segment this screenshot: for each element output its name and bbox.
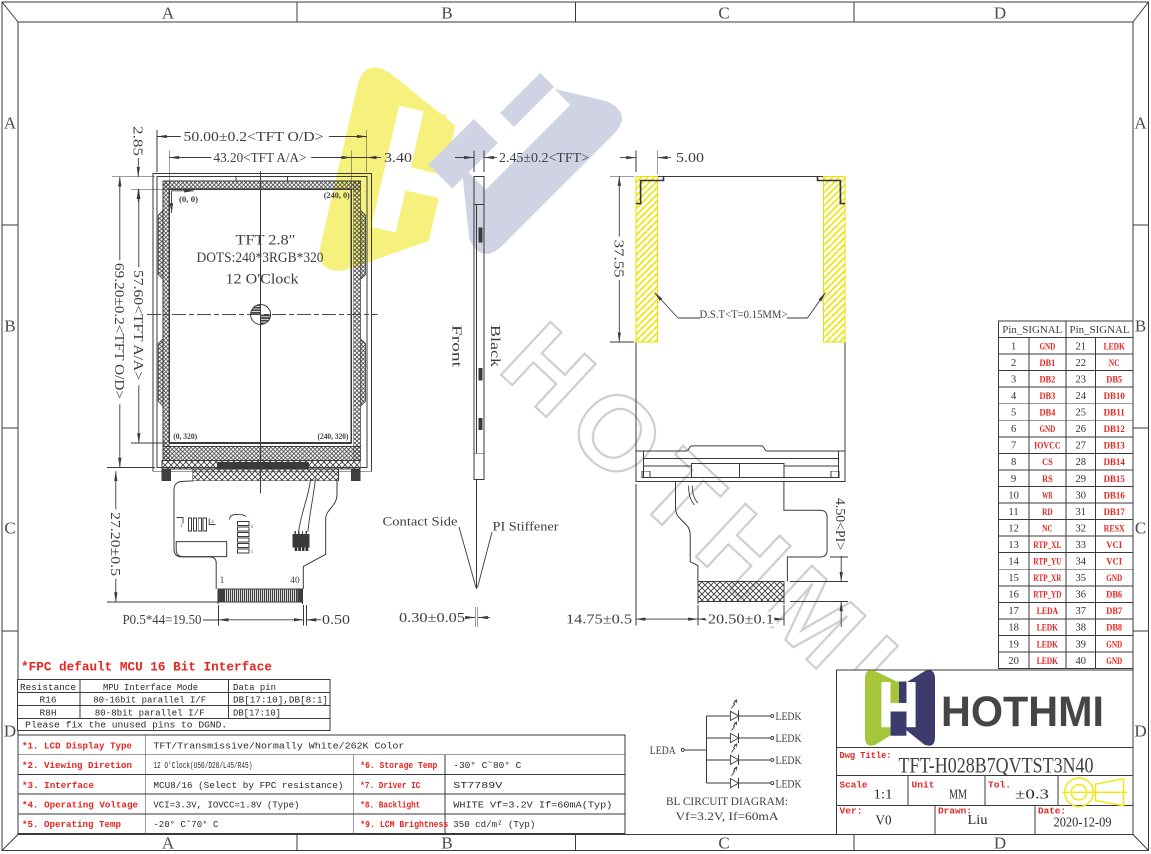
svg-text:5.00: 5.00 — [676, 150, 704, 165]
svg-text:11: 11 — [1009, 507, 1019, 518]
svg-text:50.00±0.2<TFT O/D>: 50.00±0.2<TFT O/D> — [184, 129, 324, 144]
svg-text:DB1: DB1 — [1039, 358, 1055, 368]
svg-text:13: 13 — [1008, 540, 1019, 551]
svg-text:DB6: DB6 — [1106, 590, 1122, 600]
svg-text:R8H: R8H — [40, 707, 57, 718]
svg-text:7: 7 — [1011, 441, 1016, 452]
svg-text:32: 32 — [1076, 523, 1087, 534]
svg-text:VCI: VCI — [1106, 557, 1122, 567]
svg-text:*5. Operating Temp: *5. Operating Temp — [22, 819, 121, 830]
svg-text:37.55: 37.55 — [612, 240, 627, 278]
svg-text:38: 38 — [1076, 623, 1087, 634]
svg-text:A: A — [162, 4, 175, 23]
svg-text:80-8bit parallel I/F: 80-8bit parallel I/F — [95, 707, 205, 718]
svg-text:0.30±0.05: 0.30±0.05 — [399, 610, 465, 625]
svg-text:-30° C˜80° C: -30° C˜80° C — [453, 760, 521, 771]
svg-text:DB2: DB2 — [1039, 375, 1055, 385]
svg-text:DB12: DB12 — [1104, 424, 1126, 434]
svg-text:20: 20 — [1008, 656, 1019, 667]
svg-text:28: 28 — [1076, 457, 1087, 468]
svg-text:3.40: 3.40 — [384, 150, 412, 165]
svg-text:IOVCC: IOVCC — [1034, 441, 1061, 451]
svg-text:RTP_YD: RTP_YD — [1033, 590, 1061, 600]
svg-text:2: 2 — [1011, 358, 1016, 369]
svg-text:DB4: DB4 — [1039, 408, 1055, 418]
svg-text:GND: GND — [1106, 639, 1122, 649]
svg-text:(240, 320): (240, 320) — [318, 432, 349, 441]
svg-text:39: 39 — [1076, 639, 1087, 650]
svg-text:RESX: RESX — [1104, 523, 1126, 533]
svg-text:RTP_YU: RTP_YU — [1033, 557, 1061, 567]
svg-text:57.60<TFT A/A>: 57.60<TFT A/A> — [131, 270, 146, 380]
svg-text:Front: Front — [449, 325, 464, 367]
svg-text:27: 27 — [1076, 441, 1087, 452]
svg-text:(0, 320): (0, 320) — [173, 432, 197, 441]
svg-text:D: D — [994, 834, 1006, 853]
svg-text:B: B — [1135, 317, 1146, 336]
svg-text:8: 8 — [1011, 457, 1016, 468]
svg-text:Ver:: Ver: — [840, 806, 863, 817]
svg-text:34: 34 — [1076, 557, 1087, 568]
svg-text:GND: GND — [1039, 424, 1055, 434]
svg-text:29: 29 — [1076, 474, 1087, 485]
svg-text:33: 33 — [1076, 540, 1087, 551]
svg-text:VCI: VCI — [1106, 540, 1122, 550]
svg-text:GND: GND — [1039, 341, 1055, 351]
svg-text:43.20<TFT A/A>: 43.20<TFT A/A> — [214, 150, 307, 165]
svg-text:D: D — [994, 4, 1006, 23]
svg-text:2020-12-09: 2020-12-09 — [1054, 815, 1112, 830]
svg-text:BL CIRCUIT DIAGRAM:: BL CIRCUIT DIAGRAM: — [666, 796, 788, 808]
svg-text:23: 23 — [1076, 375, 1087, 386]
svg-text:*9. LCM Brightness: *9. LCM Brightness — [360, 819, 448, 830]
svg-text:15: 15 — [1008, 573, 1019, 584]
svg-text:C: C — [718, 834, 729, 853]
svg-text:B: B — [441, 4, 452, 23]
svg-text:1: 1 — [1011, 341, 1016, 352]
svg-text:Scale: Scale — [840, 780, 868, 791]
svg-text:CS: CS — [1042, 457, 1053, 467]
svg-text:C: C — [4, 519, 15, 538]
svg-text:TFT 2.8″: TFT 2.8″ — [236, 233, 296, 249]
svg-text:Resistance: Resistance — [20, 682, 76, 693]
svg-text:DB8: DB8 — [1106, 623, 1122, 633]
svg-text:A: A — [4, 114, 17, 133]
svg-text:*FPC default MCU 16 Bit Interf: *FPC default MCU 16 Bit Interface — [21, 659, 272, 674]
svg-text:LEDK: LEDK — [1037, 623, 1058, 633]
svg-text:Data pin: Data pin — [233, 682, 276, 693]
svg-text:26: 26 — [1076, 424, 1087, 435]
svg-text:A: A — [162, 834, 175, 853]
svg-text:MM: MM — [949, 788, 967, 803]
svg-text:21: 21 — [1076, 341, 1087, 352]
svg-text:40: 40 — [1076, 656, 1087, 667]
svg-text:Pin_SIGNAL: Pin_SIGNAL — [1070, 325, 1130, 336]
svg-text:LEDK: LEDK — [1037, 656, 1058, 666]
svg-text:DB5: DB5 — [1106, 375, 1122, 385]
svg-text:14.75±0.5: 14.75±0.5 — [566, 611, 632, 626]
svg-text:*6. Storage Temp: *6. Storage Temp — [360, 760, 437, 771]
svg-text:12: 12 — [1008, 523, 1019, 534]
svg-text:14: 14 — [1008, 557, 1019, 568]
svg-text:R16: R16 — [40, 694, 57, 705]
svg-text:RTP_XR: RTP_XR — [1033, 573, 1061, 583]
svg-text:TFT-H028B7QVTST3N40: TFT-H028B7QVTST3N40 — [899, 753, 1094, 778]
svg-text:10: 10 — [1008, 490, 1019, 501]
svg-text:DB13: DB13 — [1104, 441, 1126, 451]
svg-text:DB16: DB16 — [1104, 490, 1126, 500]
svg-text:*8. Backlight: *8. Backlight — [360, 800, 420, 811]
svg-text:17: 17 — [1008, 606, 1019, 617]
svg-text:35: 35 — [1076, 573, 1087, 584]
svg-text:D.S.T<T=0.15MM>: D.S.T<T=0.15MM> — [700, 307, 788, 321]
svg-text:HOTHMI: HOTHMI — [941, 688, 1104, 736]
svg-text:MPU Interface Mode: MPU Interface Mode — [103, 682, 198, 693]
svg-text:Pin_SIGNAL: Pin_SIGNAL — [1002, 325, 1062, 336]
svg-text:RTP_XL: RTP_XL — [1033, 540, 1061, 550]
svg-text:±0.3: ±0.3 — [1015, 788, 1049, 803]
svg-text:LEDK: LEDK — [776, 778, 803, 790]
svg-text:C: C — [1135, 519, 1146, 538]
svg-text:2.85: 2.85 — [130, 126, 145, 156]
svg-text:RS: RS — [1042, 474, 1053, 484]
svg-text:C: C — [718, 4, 729, 23]
svg-text:3: 3 — [1011, 375, 1016, 386]
svg-text:Contact Side: Contact Side — [383, 514, 458, 529]
svg-text:Black: Black — [488, 325, 503, 367]
svg-text:24: 24 — [1076, 391, 1087, 402]
svg-text:LEDA: LEDA — [1037, 606, 1059, 616]
svg-text:36: 36 — [1076, 590, 1087, 601]
svg-text:12 O'Clock(U50/D20/L45/R45): 12 O'Clock(U50/D20/L45/R45) — [153, 760, 252, 771]
svg-text:6: 6 — [1011, 424, 1016, 435]
svg-text:NC: NC — [1109, 358, 1120, 368]
svg-text:A: A — [1134, 114, 1147, 133]
svg-text:Dwg Title:: Dwg Title: — [840, 750, 892, 761]
svg-text:80-16bit parallel I/F: 80-16bit parallel I/F — [93, 694, 206, 705]
svg-text:GND: GND — [1106, 573, 1122, 583]
svg-text:DB10: DB10 — [1104, 391, 1126, 401]
svg-text:*4. Operating Voltage: *4. Operating Voltage — [22, 800, 138, 811]
svg-text:(0, 0): (0, 0) — [179, 195, 198, 204]
svg-text:LEDK: LEDK — [776, 711, 803, 723]
svg-text:40: 40 — [290, 576, 300, 586]
svg-text:DB[17:10]: DB[17:10] — [233, 707, 281, 718]
svg-text:Unit: Unit — [912, 780, 935, 791]
svg-text:DB15: DB15 — [1104, 474, 1126, 484]
svg-text:WR: WR — [1042, 490, 1053, 500]
svg-text:30: 30 — [1076, 490, 1087, 501]
svg-text:D: D — [1134, 722, 1146, 741]
svg-text:19: 19 — [1008, 639, 1019, 650]
svg-text:Tol.: Tol. — [988, 780, 1011, 791]
svg-text:20.50±0.1: 20.50±0.1 — [708, 611, 774, 626]
svg-text:1:1: 1:1 — [874, 788, 893, 803]
svg-text:25: 25 — [1076, 408, 1087, 419]
svg-text:Liu: Liu — [968, 812, 988, 827]
svg-text:B: B — [4, 317, 15, 336]
svg-text:22: 22 — [1076, 358, 1087, 369]
svg-text:350 cd/m² (Typ): 350 cd/m² (Typ) — [453, 819, 535, 830]
svg-text:0.50: 0.50 — [322, 612, 350, 627]
svg-text:*3. Interface: *3. Interface — [22, 780, 94, 791]
svg-text:*2. Viewing Diretion: *2. Viewing Diretion — [22, 760, 132, 771]
svg-text:LEDK: LEDK — [1037, 639, 1058, 649]
svg-text:5: 5 — [1011, 408, 1016, 419]
svg-text:1: 1 — [220, 576, 225, 586]
svg-text:DB17: DB17 — [1104, 507, 1126, 517]
svg-text:DOTS:240*3RGB*320: DOTS:240*3RGB*320 — [197, 250, 324, 266]
svg-text:MCU8/16 (Select by FPC resista: MCU8/16 (Select by FPC resistance) — [153, 780, 343, 791]
svg-text:DB7: DB7 — [1106, 606, 1122, 616]
svg-text:DB11: DB11 — [1104, 408, 1126, 418]
svg-text:WHITE Vf=3.2V If=60mA(Typ): WHITE Vf=3.2V If=60mA(Typ) — [453, 800, 612, 811]
svg-text:2.45±0.2<TFT>: 2.45±0.2<TFT> — [499, 150, 589, 165]
svg-text:LEDA: LEDA — [650, 745, 677, 757]
svg-text:-20° C˜70° C: -20° C˜70° C — [153, 819, 218, 830]
svg-text:V0: V0 — [876, 813, 892, 828]
svg-text:31: 31 — [1076, 507, 1087, 518]
svg-text:P0.5*44=19.50: P0.5*44=19.50 — [123, 612, 202, 627]
svg-text:LEDK: LEDK — [776, 733, 803, 745]
svg-text:12 O'Clock: 12 O'Clock — [226, 272, 300, 288]
svg-text:D: D — [4, 722, 16, 741]
svg-text:NC: NC — [1042, 523, 1053, 533]
svg-text:LEDK: LEDK — [776, 755, 803, 767]
svg-text:69.20±0.2<TFT O/D>: 69.20±0.2<TFT O/D> — [112, 263, 127, 399]
svg-text:DB[17:10],DB[8:1]: DB[17:10],DB[8:1] — [233, 694, 328, 705]
svg-text:27.20±0.5: 27.20±0.5 — [108, 512, 123, 576]
svg-text:9: 9 — [1011, 474, 1016, 485]
svg-text:37: 37 — [1076, 606, 1087, 617]
svg-text:*1. LCD Display Type: *1. LCD Display Type — [22, 740, 132, 751]
svg-text:RD: RD — [1042, 507, 1053, 517]
svg-text:VCI=3.3V, IOVCC=1.8V (Type): VCI=3.3V, IOVCC=1.8V (Type) — [153, 800, 299, 811]
svg-text:B: B — [441, 834, 452, 853]
svg-text:GND: GND — [1106, 656, 1122, 666]
svg-text:LEDK: LEDK — [1104, 341, 1125, 351]
svg-text:4: 4 — [1011, 391, 1017, 402]
svg-text:DB14: DB14 — [1104, 457, 1126, 467]
svg-text:Please fix the unused pins to: Please fix the unused pins to DGND. — [25, 719, 227, 730]
svg-text:PI Stiffener: PI Stiffener — [493, 519, 560, 534]
svg-text:18: 18 — [1008, 623, 1019, 634]
svg-text:16: 16 — [1008, 590, 1019, 601]
svg-text:ST7789V: ST7789V — [453, 780, 502, 791]
svg-text:TFT/Transmissive/Normally Whit: TFT/Transmissive/Normally White/262K Col… — [153, 740, 404, 751]
svg-text:4.50<PI>: 4.50<PI> — [833, 498, 848, 550]
svg-text:DB3: DB3 — [1039, 391, 1055, 401]
svg-text:(240, 0): (240, 0) — [324, 191, 350, 200]
svg-text:*7. Driver IC: *7. Driver IC — [360, 780, 420, 791]
svg-text:Vf=3.2V, If=60mA: Vf=3.2V, If=60mA — [676, 811, 780, 823]
